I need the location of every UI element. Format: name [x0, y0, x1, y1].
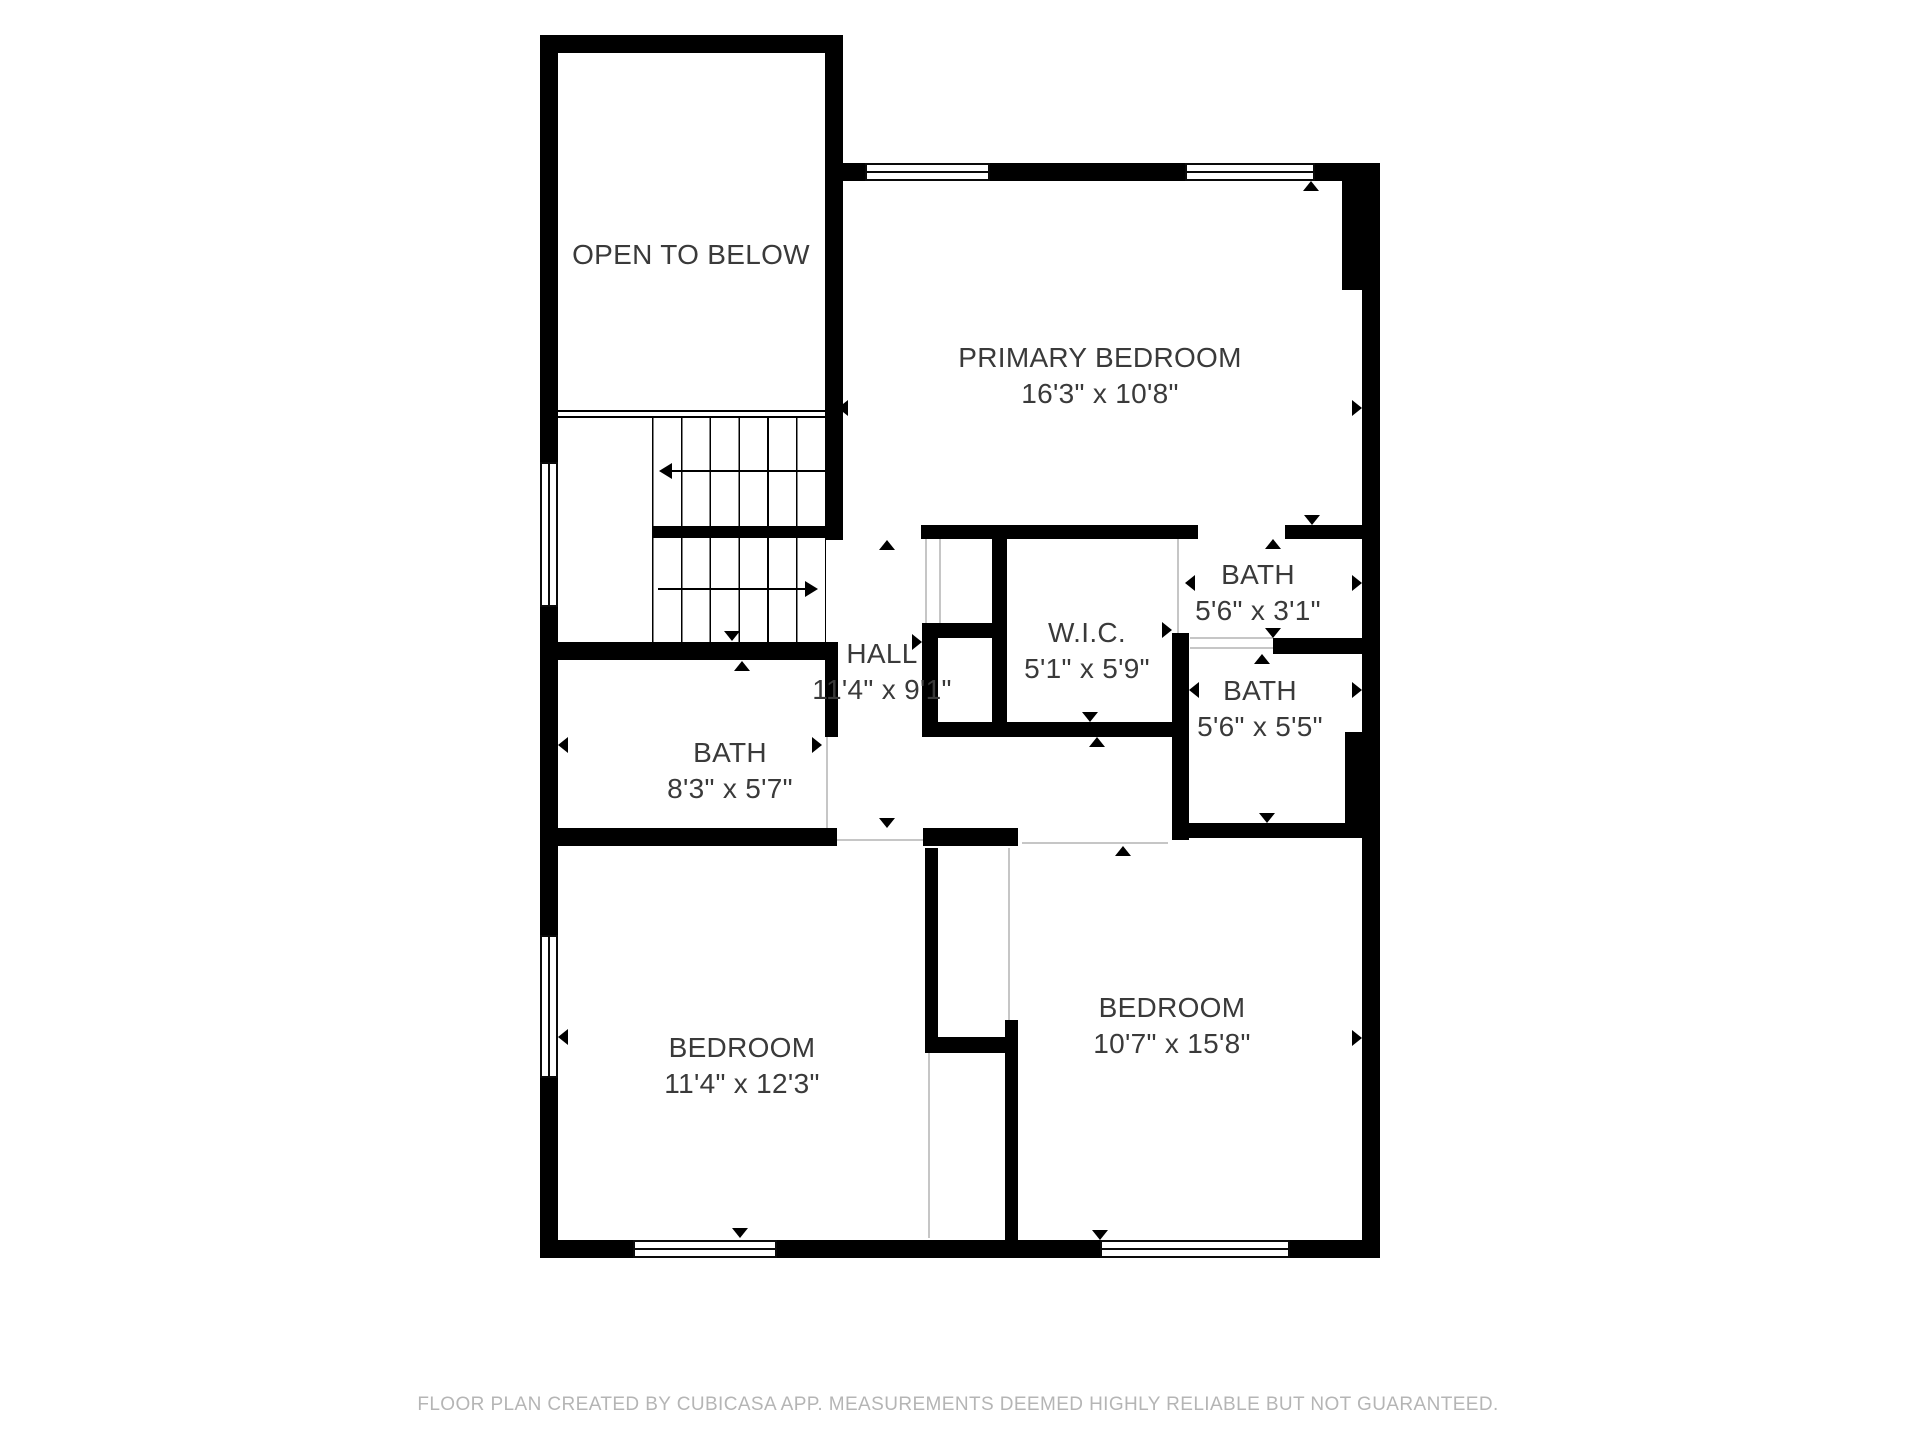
marker-bath-top-right [1352, 575, 1362, 591]
window-bottom-right [1100, 1240, 1290, 1258]
marker-bath-mid-bottom [1259, 813, 1275, 823]
door-marker-stairs-bath-top [724, 631, 740, 641]
wall-closet-right [1005, 1020, 1018, 1240]
window-bedroom-left [540, 935, 558, 1078]
room-label-bath-left: BATH 8'3" x 5'7" [667, 735, 793, 807]
door-marker-bedroom-left [879, 818, 895, 828]
room-dims: 5'1" x 5'9" [1024, 651, 1150, 687]
marker-primary-right-wall [1352, 400, 1362, 416]
wall-outer-top-open-below [540, 35, 843, 53]
room-label-bedroom-right: BEDROOM 10'7" x 15'8" [1093, 990, 1250, 1062]
door-leaf-closet-lower [928, 1053, 930, 1238]
stairs-lower-flight [652, 538, 826, 643]
door-marker-bath-divider-b [1254, 654, 1270, 664]
marker-bath-top-left [1185, 575, 1195, 591]
room-name: OPEN TO BELOW [572, 237, 810, 273]
door-leaf-bath-top [1177, 539, 1179, 633]
wall-outer-right [1362, 163, 1380, 1258]
stairs-arrow-lower-head [805, 581, 818, 597]
footer-disclaimer: FLOOR PLAN CREATED BY CUBICASA APP. MEAS… [417, 1394, 1498, 1416]
wall-below-stairs [540, 642, 838, 660]
room-name: HALL [812, 636, 952, 672]
marker-bedroom-right-wall [1352, 1030, 1362, 1046]
wall-bedrooms-top-left [540, 828, 837, 846]
room-label-primary-bedroom: PRIMARY BEDROOM 16'3" x 10'8" [958, 340, 1242, 412]
room-name: BEDROOM [1093, 990, 1250, 1026]
door-leaf-bedroom-right [1022, 842, 1168, 844]
door-marker-wic-top-side [1082, 712, 1098, 722]
marker-stairs-top-hall [838, 400, 848, 416]
room-name: BATH [1195, 557, 1321, 593]
room-label-bath-top: BATH 5'6" x 3'1" [1195, 557, 1321, 629]
open-below-boundary-line [558, 410, 825, 418]
wall-bath-divider [1273, 638, 1362, 654]
room-dims: 11'4" x 9'1" [812, 672, 952, 708]
wall-wic-bottom [922, 722, 1187, 737]
room-label-wic: W.I.C. 5'1" x 5'9" [1024, 615, 1150, 687]
door-marker-bath-top-entry-b [1265, 539, 1281, 549]
room-label-hall: HALL 11'4" x 9'1" [812, 636, 952, 708]
door-leaf-closet-upper [1008, 848, 1010, 1020]
window-bottom-left [633, 1240, 777, 1258]
wall-primary-bottom-b [1285, 525, 1362, 539]
room-name: BEDROOM [664, 1030, 819, 1066]
door-leaf-bath-mid-b [1190, 647, 1273, 649]
wall-wic-left [992, 538, 1007, 722]
door-marker-stairs-bath-bottom [734, 661, 750, 671]
wall-bath-mid-bottom [1172, 823, 1362, 838]
door-leaf-closet-channel-b [939, 539, 941, 623]
wall-corner-block-top-right [1342, 163, 1380, 290]
marker-window-bottom-left [732, 1228, 748, 1238]
window-primary-top-1 [865, 163, 990, 181]
door-leaf-bedroom-left [837, 839, 923, 841]
room-dims: 16'3" x 10'8" [958, 376, 1242, 412]
room-dims: 5'6" x 3'1" [1195, 593, 1321, 629]
wall-closet-left [925, 848, 938, 1037]
room-dims: 5'6" x 5'5" [1197, 709, 1323, 745]
marker-window-bottom-right [1092, 1230, 1108, 1240]
wall-wic-right [1172, 633, 1189, 840]
stairs-upper-flight [652, 418, 826, 526]
door-leaf-closet-channel-a [925, 539, 927, 623]
room-dims: 10'7" x 15'8" [1093, 1026, 1250, 1062]
room-label-bedroom-left: BEDROOM 11'4" x 12'3" [664, 1030, 819, 1102]
stairs-arrow-lower [658, 588, 806, 590]
room-dims: 8'3" x 5'7" [667, 771, 793, 807]
door-marker-bedroom-right [1115, 846, 1131, 856]
room-name: W.I.C. [1024, 615, 1150, 651]
marker-wic-corner [1162, 622, 1172, 638]
room-name: BATH [667, 735, 793, 771]
wall-bedrooms-top-mid [923, 828, 1018, 846]
marker-left-wall-bath [558, 737, 568, 753]
door-marker-wic-bottom-side [1089, 737, 1105, 747]
door-marker-hall-primary [879, 540, 895, 550]
stairs-arrow-upper-head [659, 463, 672, 479]
room-name: PRIMARY BEDROOM [958, 340, 1242, 376]
door-marker-bath-left-door [812, 737, 822, 753]
door-leaf-bath-mid-a [1190, 637, 1273, 639]
marker-bath-mid-right [1352, 682, 1362, 698]
room-name: BATH [1197, 673, 1323, 709]
door-leaf-bath-left [826, 737, 828, 828]
door-marker-bath-divider-a [1265, 628, 1281, 638]
window-primary-top-2 [1185, 163, 1315, 181]
wall-stair-landing [652, 526, 838, 538]
stairs-arrow-upper [671, 470, 825, 472]
marker-primary-top-window [1303, 181, 1319, 191]
door-marker-bath-top-entry-a [1304, 515, 1320, 525]
room-label-bath-mid: BATH 5'6" x 5'5" [1197, 673, 1323, 745]
floor-plan: OPEN TO BELOW PRIMARY BEDROOM 16'3" x 10… [0, 0, 1920, 1440]
window-stairs-left [540, 462, 558, 607]
wall-open-below-right [825, 35, 843, 540]
room-dims: 11'4" x 12'3" [664, 1066, 819, 1102]
wall-primary-bottom-a [921, 525, 1198, 539]
marker-window-bedroom-left [558, 1029, 568, 1045]
room-label-open-to-below: OPEN TO BELOW [572, 237, 810, 273]
